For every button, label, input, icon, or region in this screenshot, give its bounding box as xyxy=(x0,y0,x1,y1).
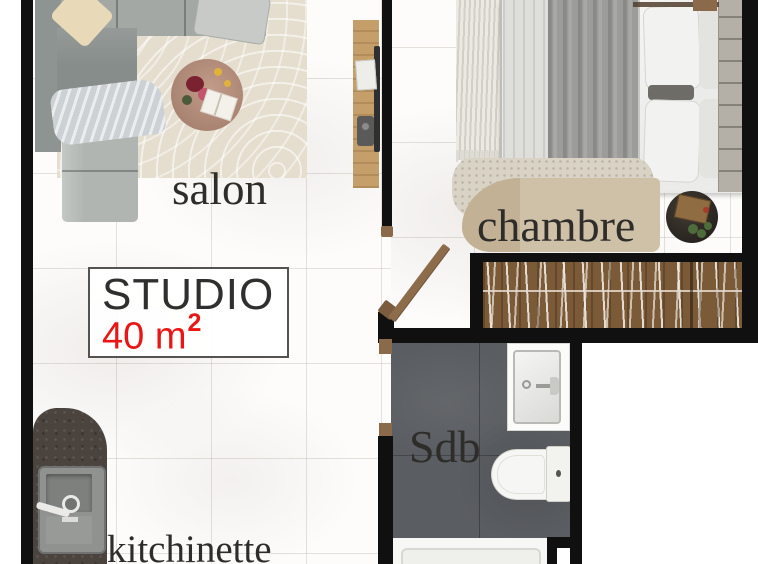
toilet-flush-button xyxy=(556,470,561,477)
bed-frame-corner xyxy=(693,0,717,11)
console-speaker xyxy=(357,116,374,146)
decor-berry xyxy=(703,207,709,213)
room-label-sdb: Sdb xyxy=(409,424,481,470)
bathroom-top-wall xyxy=(378,328,758,343)
room-label-kitchinette: kitchinette xyxy=(107,530,272,564)
wardrobe-border-left xyxy=(470,253,483,343)
console-decor-white xyxy=(355,59,377,90)
studio-info-box: STUDIO 40 m2 xyxy=(88,267,289,358)
right-wall xyxy=(742,0,758,343)
floor-plan: salon chambre Sdb kitchinette STUDIO 40 … xyxy=(0,0,758,564)
plant-leaf xyxy=(704,222,712,230)
wardrobe-rail xyxy=(483,290,742,292)
bathroom-corner-wall xyxy=(547,537,582,548)
sink-faucet xyxy=(536,384,551,388)
flower-yellow xyxy=(214,68,222,76)
headboard xyxy=(718,0,744,192)
studio-area-value: 40 m xyxy=(102,316,186,358)
bathroom-right-wall xyxy=(570,343,582,538)
divider-wall xyxy=(382,0,392,228)
left-wall xyxy=(21,0,33,564)
bathroom-corner-wall xyxy=(547,548,557,564)
plant-leaf xyxy=(697,229,706,238)
flower-yellow xyxy=(224,80,231,87)
bathtub-rim xyxy=(401,548,541,564)
studio-area-superscript: 2 xyxy=(187,309,201,337)
wardrobe xyxy=(483,262,742,328)
wardrobe-divider xyxy=(690,262,693,328)
toilet-bowl xyxy=(491,449,551,500)
divider-wall-cap xyxy=(381,226,393,237)
pillow-shadow xyxy=(648,85,694,100)
sink-drain xyxy=(522,380,531,389)
room-label-salon: salon xyxy=(172,167,267,212)
room-label-chambre: chambre xyxy=(477,203,635,249)
wardrobe-border-top xyxy=(470,253,758,262)
bathroom-left-wall xyxy=(378,436,393,564)
door-frame-top xyxy=(379,339,392,354)
bedside-runner-rug xyxy=(456,0,500,160)
sink-faucet-spout xyxy=(550,377,559,395)
bathroom-corner-wall xyxy=(570,548,582,564)
bed-pillow xyxy=(643,5,702,91)
kitchen-sink-detail xyxy=(62,517,78,522)
studio-area: 40 m2 xyxy=(102,317,287,353)
flower-greenery xyxy=(182,95,192,105)
